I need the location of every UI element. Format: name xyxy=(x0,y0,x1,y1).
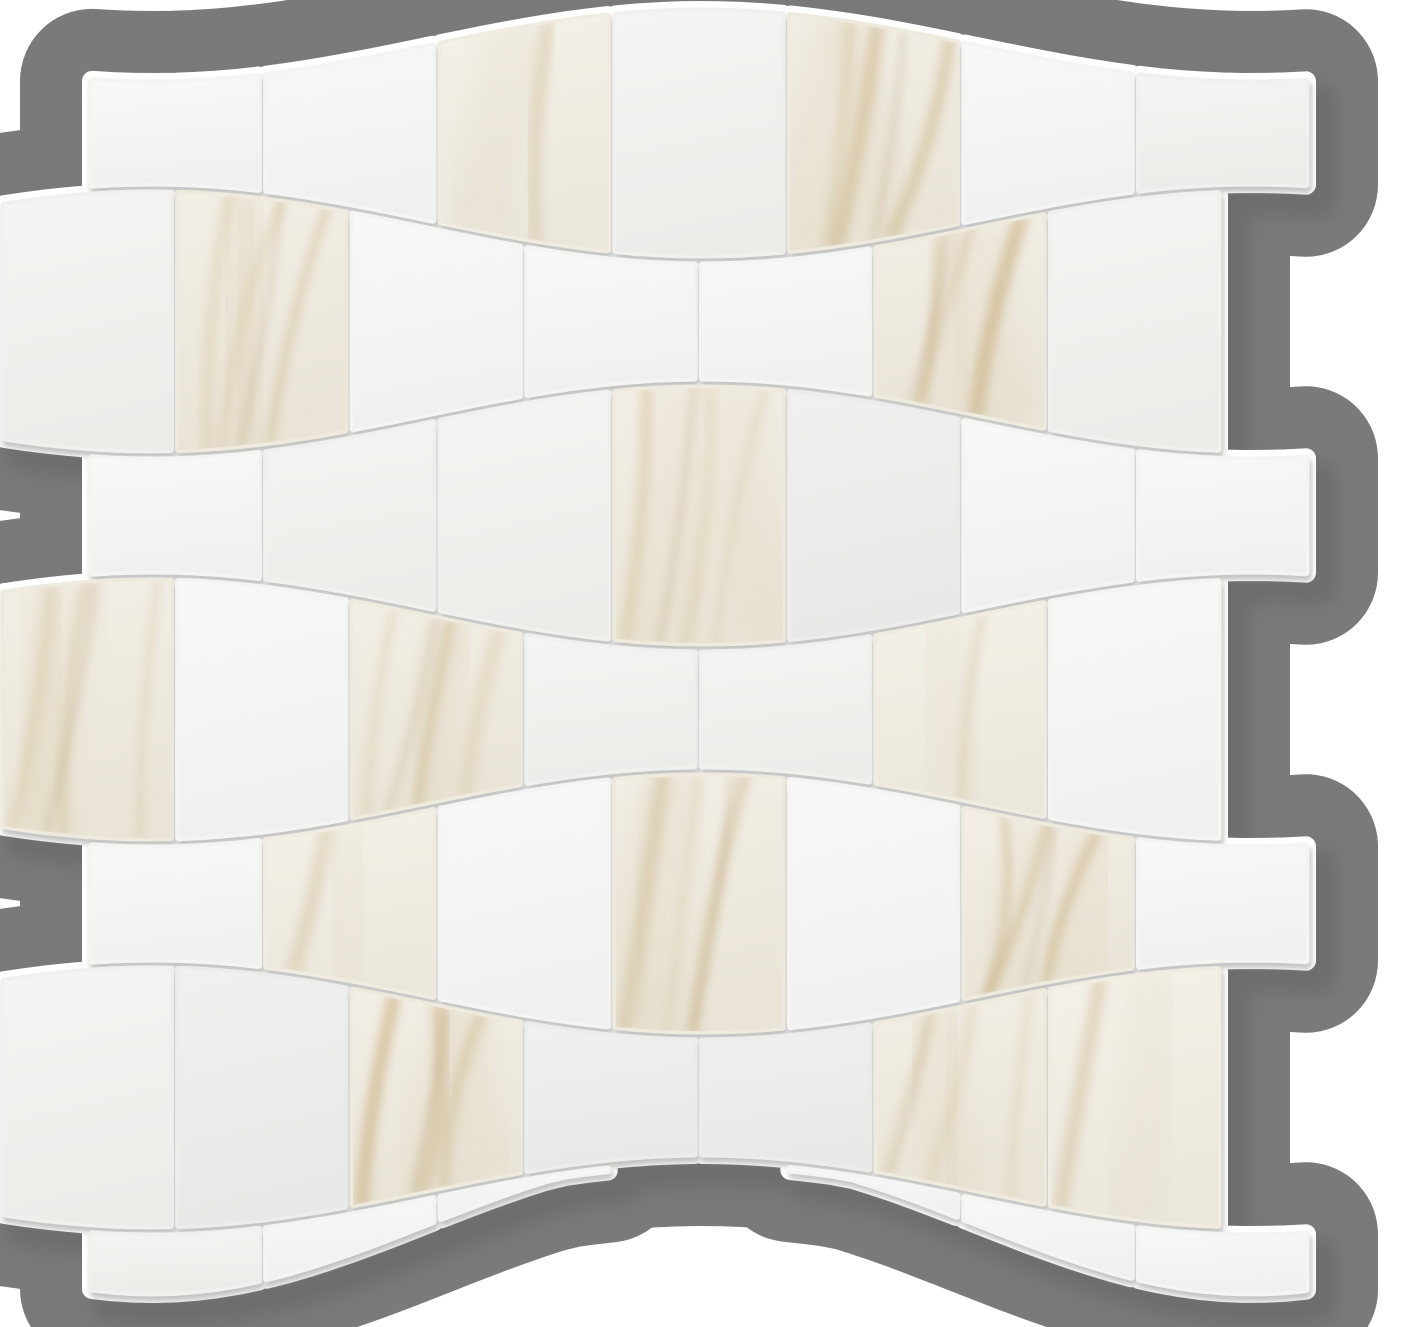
product-photo: White Calacatta marble-look mosaic tile … xyxy=(0,0,1405,1327)
marble-veins xyxy=(624,385,774,646)
tile-r4-c7 xyxy=(1051,582,1218,838)
tile-r5-c1 xyxy=(92,842,259,966)
tile-r1-c4 xyxy=(616,11,783,255)
tile-r3-c1 xyxy=(92,454,259,578)
tile-r1-c1 xyxy=(92,77,259,190)
tile-sheet xyxy=(4,11,1306,1293)
tile-r6-c3 xyxy=(353,990,520,1206)
tile-r4-c5 xyxy=(702,638,869,781)
tile-r1-c7 xyxy=(1139,76,1306,190)
tile-r6-c6 xyxy=(877,991,1044,1203)
tile-r2-c5 xyxy=(702,250,869,393)
tile-r2-c2 xyxy=(179,193,346,451)
tile-r2-c3 xyxy=(353,214,520,428)
tile-r6-c7 xyxy=(1051,970,1218,1226)
tile-r3-c4 xyxy=(616,385,783,646)
tile-r6-c5 xyxy=(702,1026,869,1169)
page: { "image": { "type": "product-photo", "s… xyxy=(0,0,1405,1327)
tile-r6-c1 xyxy=(4,969,171,1226)
tile-r7-c1 xyxy=(92,1230,259,1294)
tile-r6-c4 xyxy=(528,1025,695,1171)
tile-r4-c2 xyxy=(179,581,346,837)
tile-r4-c4 xyxy=(528,637,695,783)
tile-r1-c2 xyxy=(267,46,434,221)
tile-r5-c6 xyxy=(965,810,1132,998)
tile-r3-c7 xyxy=(1139,453,1306,578)
tile-r5-c4 xyxy=(616,773,783,1034)
tile-r6-c2 xyxy=(179,969,346,1225)
tile-r5-c2 xyxy=(267,811,434,997)
tile-r7-c7 xyxy=(1139,1229,1306,1293)
tile-r2-c4 xyxy=(528,249,695,395)
tile-r3-c6 xyxy=(965,422,1132,610)
tile-r1-c3 xyxy=(441,16,608,250)
tile-r3-c5 xyxy=(790,393,957,639)
tile-r5-c5 xyxy=(790,781,957,1027)
marble-veins xyxy=(987,814,1098,996)
tile-r3-c2 xyxy=(267,423,434,609)
tile-r2-c7 xyxy=(1051,194,1218,450)
tile-r4-c1 xyxy=(4,578,171,841)
tile-r4-c6 xyxy=(877,604,1044,816)
tile-r1-c6 xyxy=(965,45,1132,222)
tile-r5-c3 xyxy=(441,781,608,1026)
tile-r1-c5 xyxy=(790,16,957,252)
tile-r3-c3 xyxy=(441,393,608,638)
tile-r4-c3 xyxy=(353,602,520,817)
mosaic-sheet-image xyxy=(0,0,1405,1327)
tile-r2-c6 xyxy=(877,216,1044,428)
tile-r5-c7 xyxy=(1139,841,1306,966)
tile-r2-c1 xyxy=(4,193,171,450)
